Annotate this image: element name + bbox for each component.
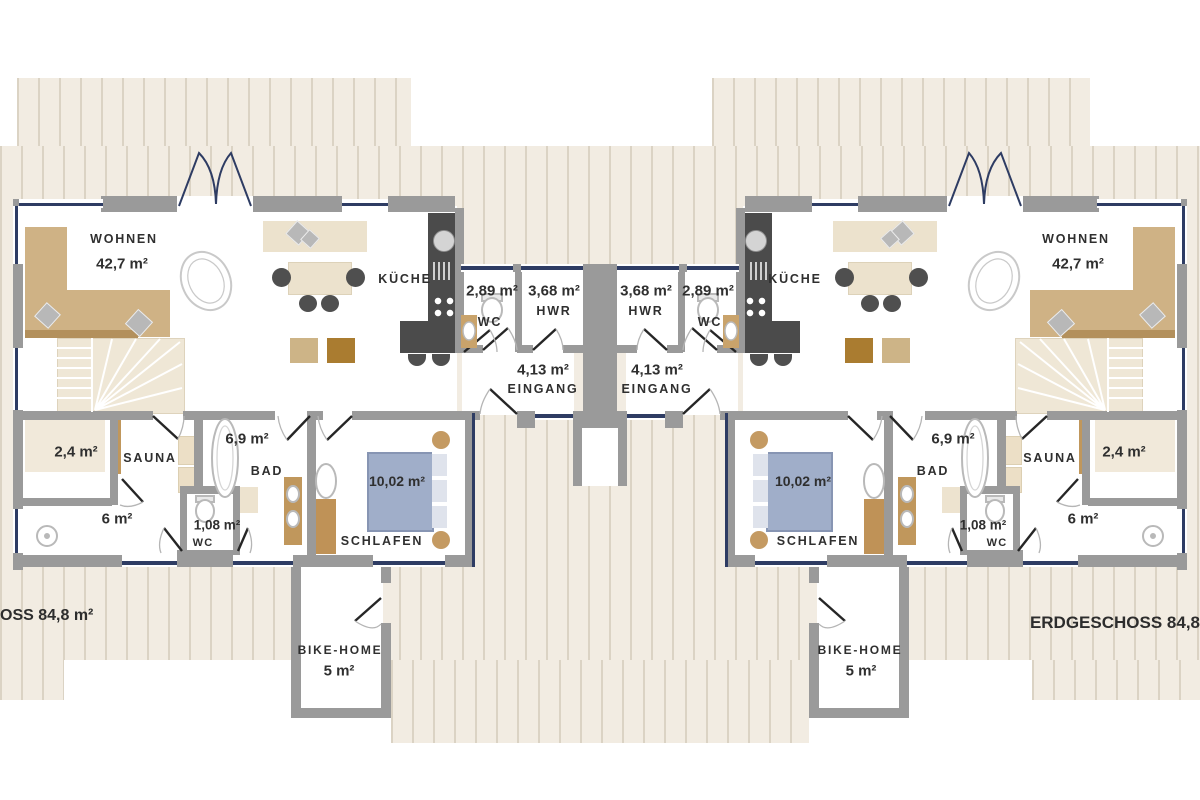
room-label-bedroom: SCHLAFEN bbox=[777, 534, 859, 548]
door-arcs bbox=[637, 328, 1080, 628]
area-label-shower: 6 m² bbox=[1068, 511, 1099, 528]
area-label-bike: 5 m² bbox=[846, 663, 877, 680]
terrace-door-icon bbox=[949, 153, 1021, 206]
room-label-entry: EINGANG bbox=[622, 382, 693, 396]
room-label-wc2: WC bbox=[987, 537, 1008, 549]
area-label-store: 2,4 m² bbox=[1102, 444, 1145, 461]
room-label-wc: WC bbox=[698, 315, 722, 329]
area-label-entry: 4,13 m² bbox=[631, 362, 683, 379]
room-label-bike: BIKE-HOME bbox=[818, 643, 903, 657]
room-label-sauna: SAUNA bbox=[1023, 451, 1076, 465]
room-label-living: WOHNEN bbox=[1042, 232, 1110, 246]
coffee-table-icon bbox=[960, 244, 1029, 319]
apartment-unit: WOHNEN 42,7 m² KÜCHE 2,89 m² WC 3,68 m² … bbox=[0, 0, 1200, 800]
area-label-wc2: 1,08 m² bbox=[960, 518, 1007, 533]
washbasin-icon bbox=[901, 486, 913, 502]
area-label-living: 42,7 m² bbox=[1052, 256, 1104, 273]
floorplan-page: { "floor_plan": { "label_left_edge": "OS… bbox=[0, 0, 1200, 800]
doors-and-fixtures-layer bbox=[0, 0, 1200, 800]
room-label-hwr: HWR bbox=[628, 304, 663, 318]
room-label-bath: BAD bbox=[917, 464, 949, 478]
area-label-bath: 6,9 m² bbox=[931, 431, 974, 448]
area-label-hwr: 3,68 m² bbox=[620, 283, 672, 300]
washbasin-icon bbox=[901, 511, 913, 527]
room-label-kitchen: KÜCHE bbox=[768, 272, 821, 286]
area-label-bedroom: 10,02 m² bbox=[775, 473, 831, 489]
washbasin-icon bbox=[725, 322, 737, 340]
stair-treads-icon bbox=[1018, 338, 1143, 412]
area-label-wc: 2,89 m² bbox=[682, 283, 734, 300]
bedroom-fixture-icon bbox=[864, 464, 884, 498]
door-leaves bbox=[644, 328, 1078, 621]
